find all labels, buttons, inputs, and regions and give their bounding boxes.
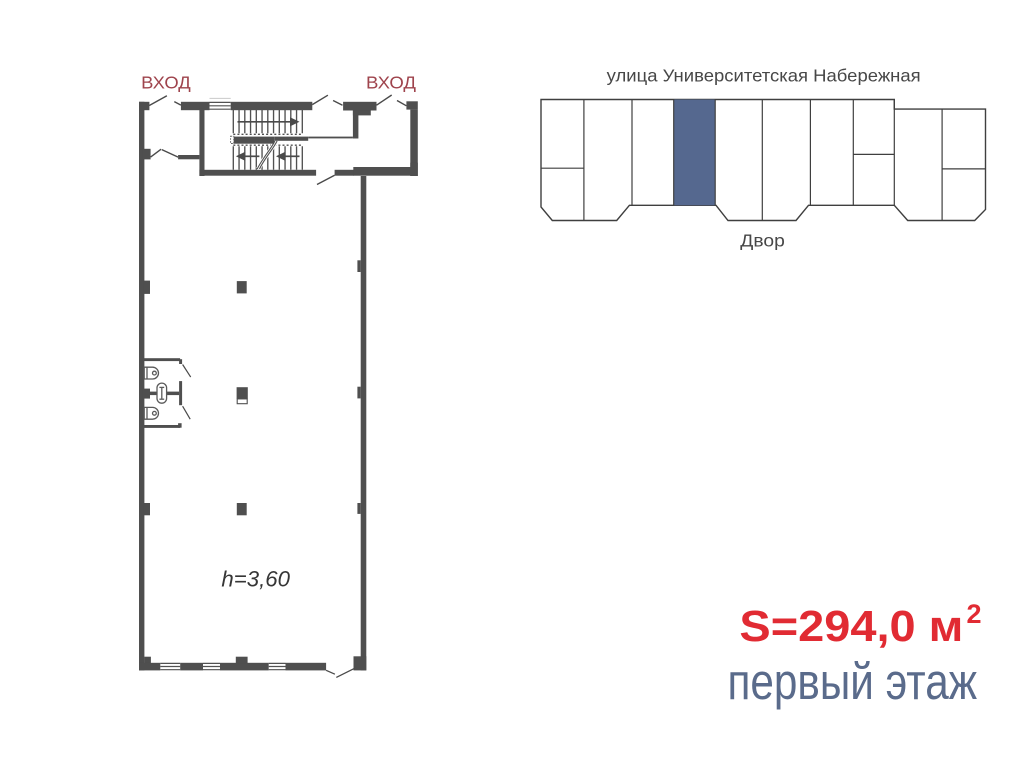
svg-text:первый этаж: первый этаж — [728, 653, 978, 710]
svg-text:ВХОД: ВХОД — [366, 72, 416, 92]
svg-text:h=3,60: h=3,60 — [221, 567, 290, 592]
svg-text:улица Университетская Набережн: улица Университетская Набережная — [607, 66, 921, 86]
svg-text:ВХОД: ВХОД — [141, 72, 191, 92]
svg-text:S=294,0 м: S=294,0 м — [739, 602, 963, 651]
svg-text:Двор: Двор — [740, 230, 785, 250]
svg-text:2: 2 — [967, 599, 982, 629]
